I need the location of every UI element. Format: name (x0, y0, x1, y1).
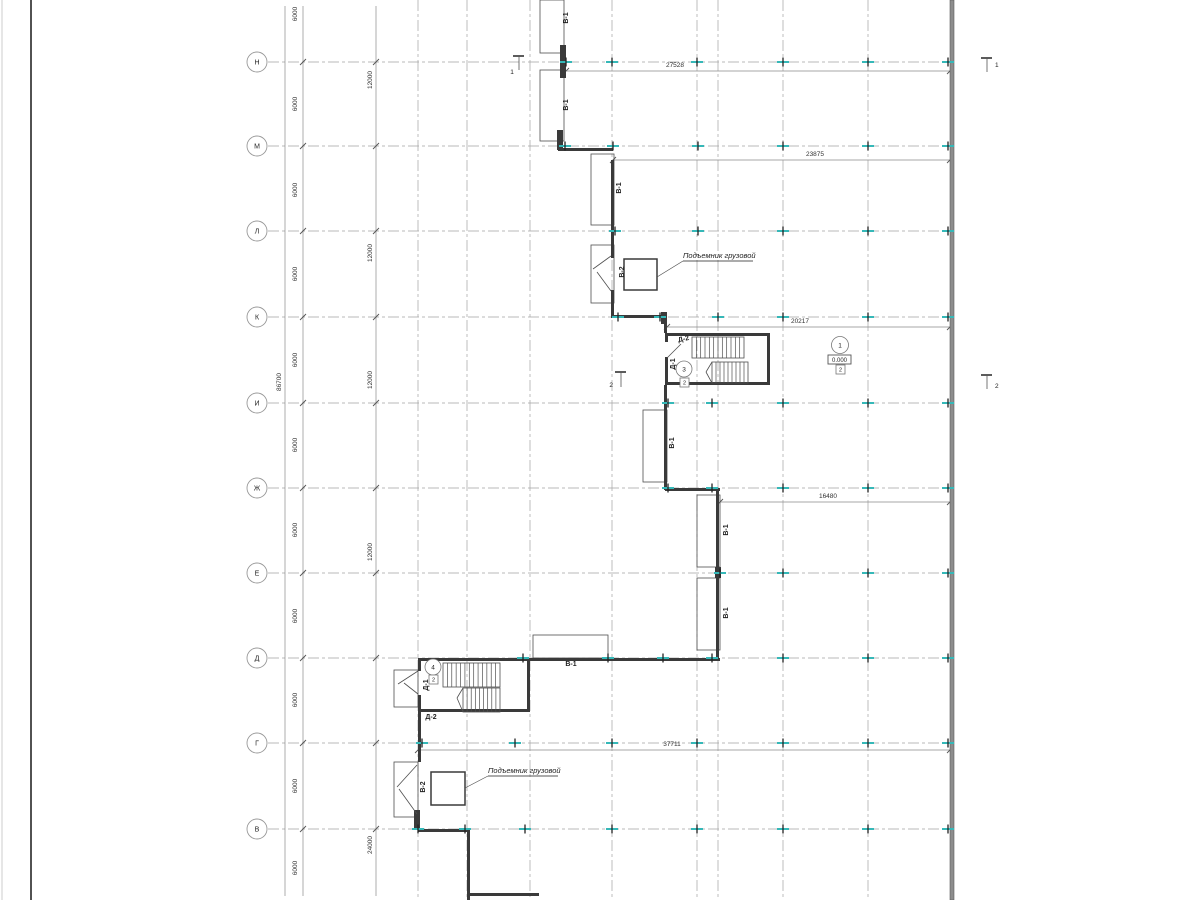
wall-segment (467, 893, 539, 896)
wall-segment (558, 148, 613, 151)
dimension-text: 24000 (367, 836, 374, 854)
column-pier (414, 810, 420, 829)
dimension-text: 16480 (819, 493, 837, 500)
wall-segment (418, 658, 421, 671)
drawing-sheet: 8670060006000600060006000600060006000600… (0, 0, 1200, 900)
wall-segment (418, 712, 421, 762)
wall-segment (611, 290, 614, 318)
tag-box-number: 2 (432, 678, 435, 684)
dimension-text: 6000 (292, 608, 299, 623)
heavy-wall (950, 0, 954, 900)
wall-segment (418, 709, 530, 712)
wall-segment (467, 832, 470, 900)
axis-letter: Н (254, 60, 259, 67)
wall-type-label: В-1 (563, 12, 570, 23)
wall-type-label: В-1 (565, 661, 576, 668)
wall-segment (664, 385, 667, 490)
sheet-background (0, 0, 1200, 900)
axis-letter: И (254, 401, 259, 408)
lift-note-text: Подъемник грузовой (488, 766, 561, 775)
dimension-text: 27528 (666, 62, 684, 69)
wall-type-label: В-2 (619, 266, 626, 277)
wall-segment (611, 160, 614, 258)
dimension-text: 6000 (292, 860, 299, 875)
dimension-text: 12000 (367, 543, 374, 561)
dimension-text: 6000 (292, 692, 299, 707)
floor-plan-canvas: 8670060006000600060006000600060006000600… (0, 0, 1200, 900)
freight-lift-shaft (624, 259, 657, 290)
dimension-text: 6000 (292, 352, 299, 367)
reference-number: 4 (431, 664, 435, 671)
axis-letter: Е (255, 571, 260, 578)
section-mark-number: 1 (510, 69, 514, 76)
wall-type-label: В-1 (669, 437, 676, 448)
dimension-text: 6000 (292, 6, 299, 21)
wall-segment (716, 488, 719, 567)
axis-letter: Д (255, 656, 260, 663)
section-mark-number: 2 (995, 383, 999, 390)
dimension-text: 6000 (292, 266, 299, 281)
wall-type-label: В-1 (723, 607, 730, 618)
wall-segment (665, 333, 668, 342)
section-mark-number: 1 (995, 62, 999, 69)
dimension-text: 37711 (663, 741, 681, 748)
dimension-text: 86700 (276, 373, 283, 391)
freight-lift-shaft (431, 772, 465, 805)
level-mark-value: 0.000 (832, 358, 848, 364)
wall-segment (665, 357, 668, 385)
lift-note-text: Подъемник грузовой (683, 251, 756, 260)
dimension-text: 6000 (292, 182, 299, 197)
dimension-text: 12000 (367, 244, 374, 262)
dimension-text: 6000 (292, 778, 299, 793)
tag-box-number: 2 (839, 368, 842, 374)
wall-type-label: В-1 (616, 182, 623, 193)
tag-box-number: 2 (683, 381, 686, 387)
dimension-text: 20217 (791, 318, 809, 325)
axis-letter: Л (255, 229, 260, 236)
wall-type-label: В-1 (723, 524, 730, 535)
dimension-text: 12000 (367, 71, 374, 89)
dimension-text: 6000 (292, 522, 299, 537)
dimension-text: 23875 (806, 151, 824, 158)
dimension-text: 12000 (367, 371, 374, 389)
wall-segment (527, 658, 530, 712)
axis-letter: В (255, 827, 260, 834)
section-mark-number: 2 (609, 382, 613, 389)
dimension-text: 6000 (292, 437, 299, 452)
reference-number: 3 (682, 366, 686, 373)
axis-letter: М (254, 144, 260, 151)
wall-segment (665, 333, 770, 336)
wall-type-label: В-1 (563, 99, 570, 110)
axis-letter: Ж (254, 486, 261, 493)
wall-segment (767, 333, 770, 385)
dimension-text: 6000 (292, 96, 299, 111)
wall-segment (716, 578, 719, 660)
wall-type-label: Д-2 (425, 714, 436, 721)
axis-letter: Г (255, 741, 259, 748)
reference-number: 1 (838, 342, 842, 349)
wall-type-label: В-2 (420, 781, 427, 792)
